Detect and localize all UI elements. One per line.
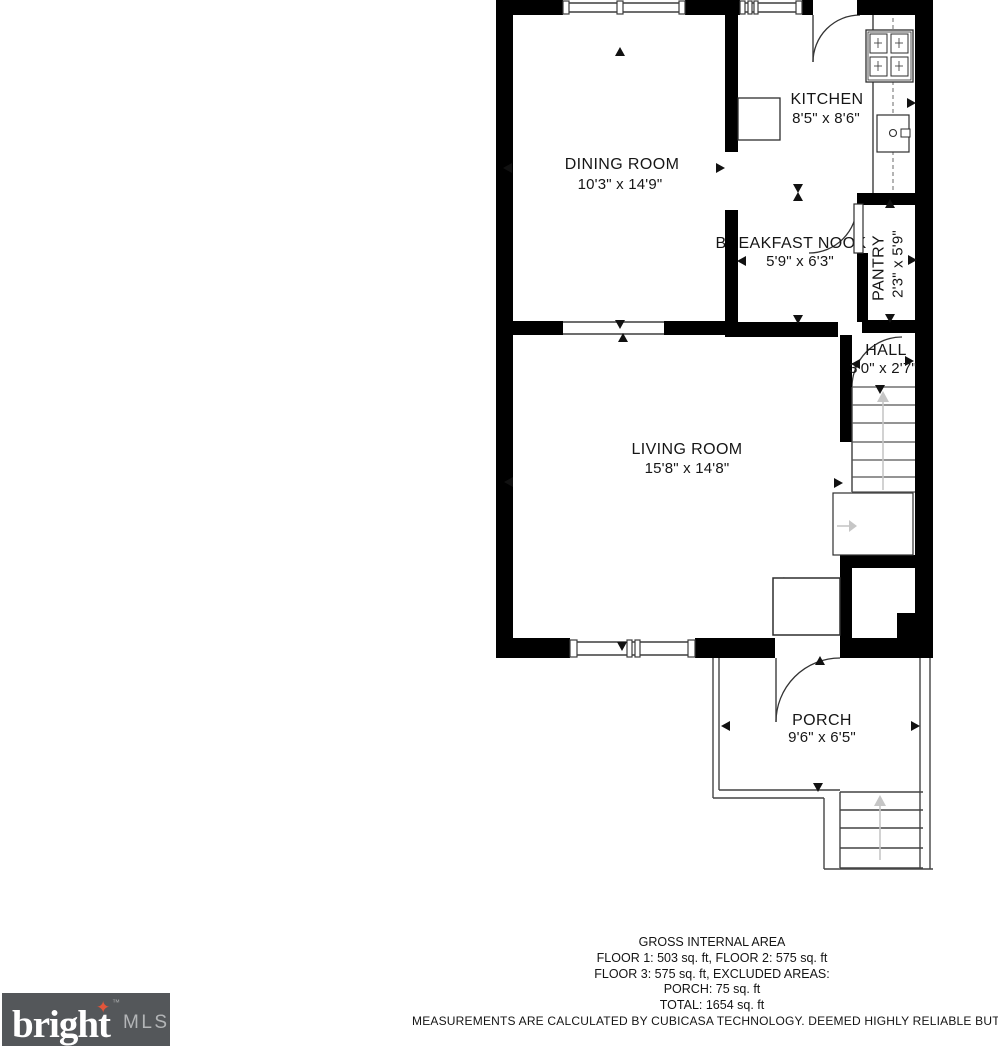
- soap-dish: [901, 129, 910, 137]
- room-name: HALL: [865, 342, 907, 359]
- stairs-up-arrow-icon: [877, 391, 889, 402]
- gross-internal-area-title: GROSS INTERNAL AREA: [412, 935, 998, 951]
- measurement-disclaimer: MEASUREMENTS ARE CALCULATED BY CUBICASA …: [412, 1014, 998, 1030]
- area-summary: GROSS INTERNAL AREA FLOOR 1: 503 sq. ft,…: [412, 935, 998, 1030]
- area-line-floor-3: FLOOR 3: 575 sq. ft, EXCLUDED AREAS:: [412, 967, 998, 983]
- dimension-tick-icon: [834, 478, 843, 488]
- dimension-tick-icon: [793, 192, 803, 201]
- room-name: DINING ROOM: [565, 156, 680, 173]
- dimension-tick-icon: [617, 642, 627, 651]
- room-label-dining-room: DINING ROOM 10'3" x 14'9": [565, 156, 680, 193]
- pantry-door-leaf: [854, 204, 863, 253]
- room-name: LIVING ROOM: [631, 441, 742, 458]
- room-name: PANTRY: [871, 235, 888, 301]
- room-dimensions: 9'6" x 6'5": [788, 729, 856, 746]
- room-dimensions: 5'9" x 6'3": [766, 253, 834, 270]
- logo-mls-text: MLS: [123, 1012, 170, 1034]
- area-line-porch: PORCH: 75 sq. ft: [412, 982, 998, 998]
- room-dimensions: 15'8" x 14'8": [645, 460, 730, 477]
- room-name: PORCH: [792, 712, 852, 729]
- bright-mls-logo: bright ✦ ™ MLS: [2, 993, 170, 1046]
- porch-steps-up-arrow-icon: [874, 795, 886, 806]
- dimension-tick-icon: [615, 47, 625, 56]
- burner-icon: [870, 57, 887, 76]
- room-dimensions: 3'0" x 2'7": [849, 360, 917, 377]
- dimension-tick-icon: [737, 256, 746, 266]
- room-label-hall: HALL 3'0" x 2'7": [849, 342, 917, 377]
- dimension-tick-icon: [615, 320, 625, 329]
- area-line-total: TOTAL: 1654 sq. ft: [412, 998, 998, 1014]
- area-line-floor-1-2: FLOOR 1: 503 sq. ft, FLOOR 2: 575 sq. ft: [412, 951, 998, 967]
- walls: [496, 0, 933, 658]
- door-swing-arc: [813, 15, 860, 62]
- dimension-tick-icon: [911, 721, 920, 731]
- room-label-pantry: PANTRY 2'3" x 5'9": [871, 230, 907, 301]
- refrigerator-icon: [738, 98, 780, 140]
- room-label-porch: PORCH 9'6" x 6'5": [788, 712, 856, 746]
- floorplan-drawing: BREAKFAST NOOK 5'9" x 6'3" DINING ROOM 1…: [0, 0, 998, 1046]
- room-dimensions: 8'5" x 8'6": [792, 110, 860, 127]
- burner-icon: [891, 57, 908, 76]
- room-label-living-room: LIVING ROOM 15'8" x 14'8": [631, 441, 742, 477]
- burner-icon: [891, 34, 908, 53]
- room-name: KITCHEN: [790, 91, 863, 108]
- room-label-breakfast-nook: BREAKFAST NOOK 5'9" x 6'3": [715, 235, 866, 270]
- room-label-kitchen: KITCHEN 8'5" x 8'6": [790, 91, 863, 127]
- under-stair-closet: [833, 493, 913, 555]
- entry-vestibule: [773, 578, 840, 635]
- trademark-symbol: ™: [112, 998, 120, 1007]
- floorplan-page: BREAKFAST NOOK 5'9" x 6'3" DINING ROOM 1…: [0, 0, 998, 1046]
- sparkle-star-icon: ✦: [96, 1000, 110, 1017]
- room-name: BREAKFAST NOOK: [715, 235, 866, 252]
- dimension-tick-icon: [716, 163, 725, 173]
- dimension-tick-icon: [907, 98, 916, 108]
- room-dimensions: 2'3" x 5'9": [890, 230, 907, 298]
- burner-icon: [870, 34, 887, 53]
- dimension-tick-icon: [721, 721, 730, 731]
- dimension-tick-icon: [793, 184, 803, 193]
- room-dimensions: 10'3" x 14'9": [578, 176, 663, 193]
